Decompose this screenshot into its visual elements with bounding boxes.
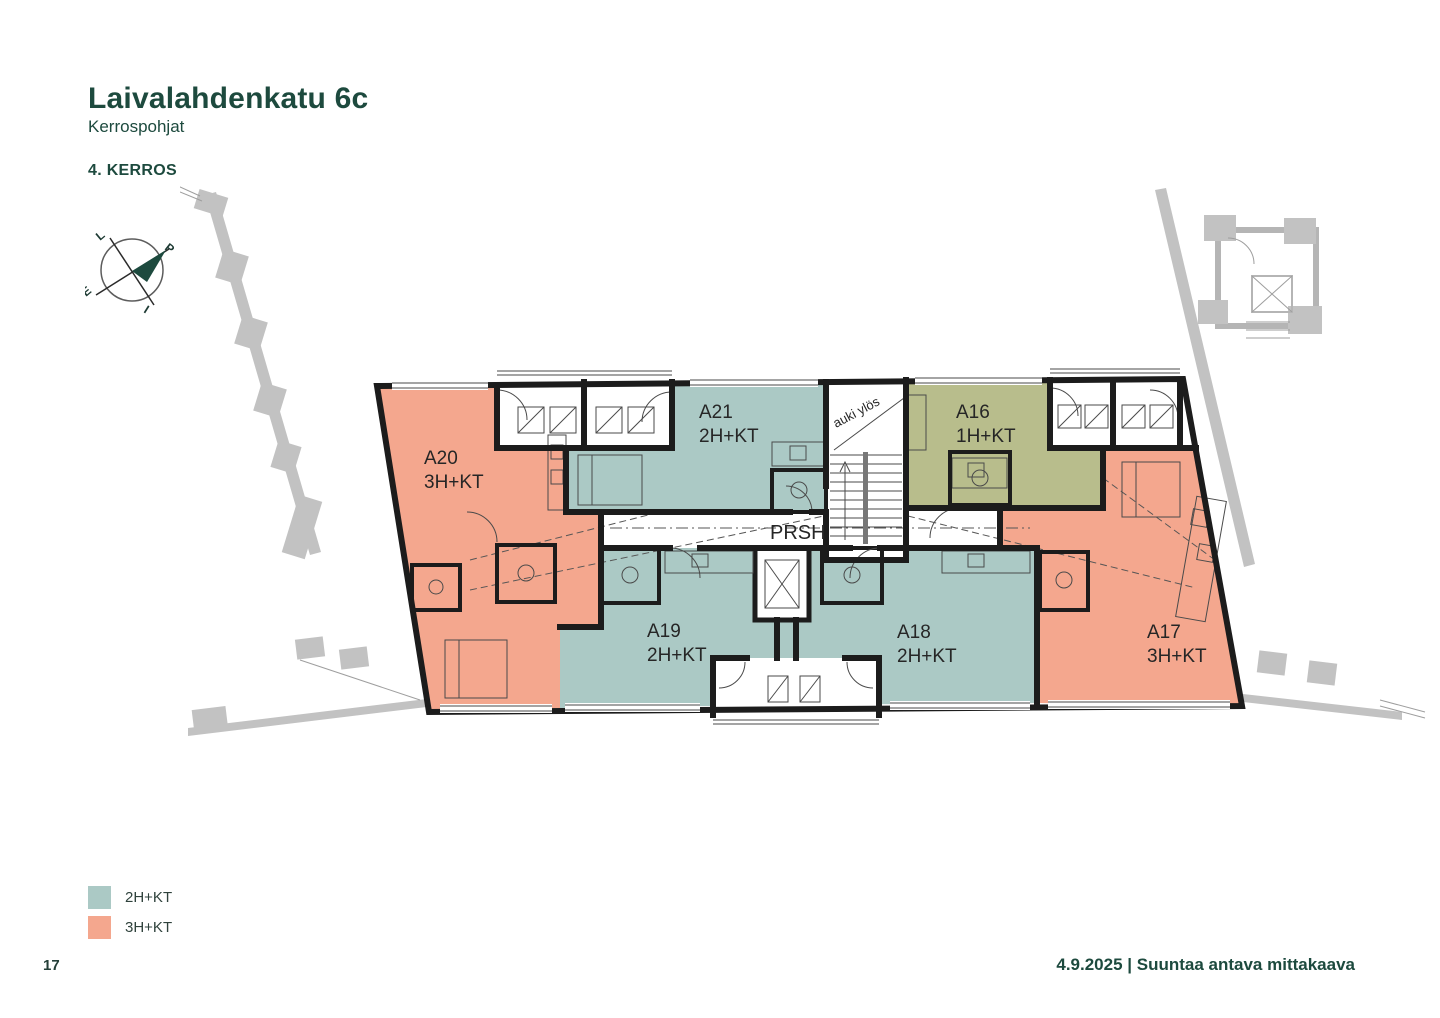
legend-swatch-3hkt	[88, 916, 111, 939]
apartment-label-a20: A20	[424, 448, 458, 469]
apartment-type-a16: 1H+KT	[956, 426, 1016, 447]
compass-east-label: I	[141, 303, 151, 317]
legend-item-2hkt: 2H+KT	[88, 886, 172, 909]
page-number: 17	[43, 957, 60, 974]
legend-item-3hkt: 3H+KT	[88, 916, 172, 939]
legend-label-2hkt: 2H+KT	[125, 889, 172, 906]
apartment-label-a17: A17	[1147, 622, 1181, 643]
compass-icon: L P E I	[85, 223, 185, 318]
apartment-type-a18: 2H+KT	[897, 646, 957, 667]
apartment-label-a19: A19	[647, 621, 681, 642]
elevator	[755, 548, 809, 620]
apartment-type-a17: 3H+KT	[1147, 646, 1207, 667]
apartment-label-a21: A21	[699, 402, 733, 423]
page-subtitle: Kerrospohjat	[88, 117, 184, 137]
apartment-label-a18: A18	[897, 622, 931, 643]
compass-north-label: P	[162, 240, 177, 256]
corridor-area-east	[906, 510, 1000, 548]
neighbor-building-bottom-right	[1243, 650, 1425, 720]
footer-note: 4.9.2025 | Suuntaa antava mittakaava	[1056, 955, 1355, 975]
legend-label-3hkt: 3H+KT	[125, 919, 172, 936]
floor-plan: A20 3H+KT A21 2H+KT A16 1H+KT A19 2H+KT …	[180, 170, 1430, 740]
apartment-type-a19: 2H+KT	[647, 645, 707, 666]
compass-south-label: E	[85, 283, 94, 299]
legend-swatch-2hkt	[88, 886, 111, 909]
apartment-type-a20: 3H+KT	[424, 472, 484, 493]
neighbor-building-left	[180, 186, 322, 559]
page-title: Laivalahdenkatu 6c	[88, 82, 368, 116]
apartment-type-a21: 2H+KT	[699, 426, 759, 447]
apartment-label-a16: A16	[956, 402, 990, 423]
floor-label: 4. KERROS	[88, 162, 177, 180]
corridor-label: PRSH	[770, 522, 826, 544]
compass-west-label: L	[93, 228, 108, 243]
neighbor-building-bottom-left	[188, 636, 435, 736]
